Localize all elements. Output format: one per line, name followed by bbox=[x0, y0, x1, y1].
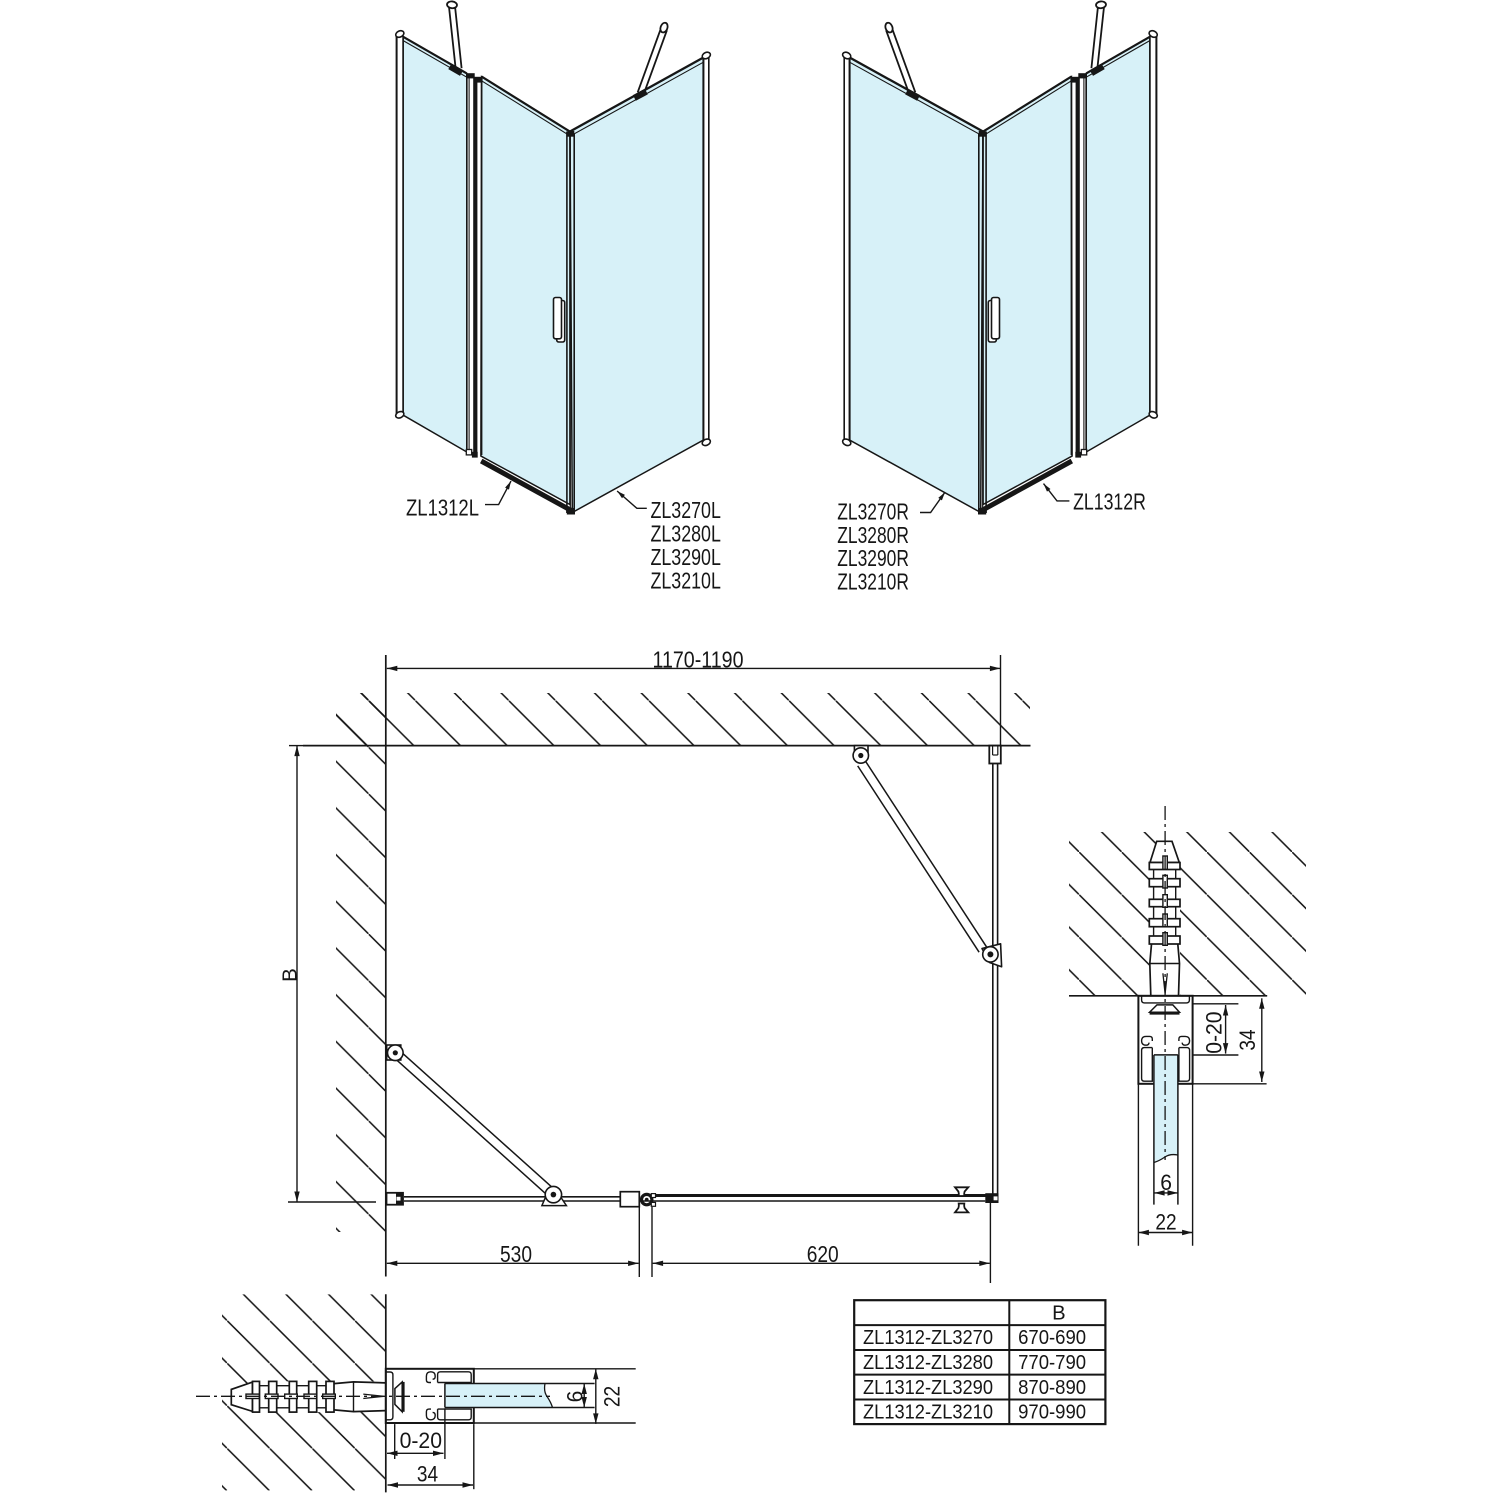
svg-text:ZL1312-ZL3290: ZL1312-ZL3290 bbox=[863, 1377, 993, 1399]
svg-text:620: 620 bbox=[807, 1241, 839, 1267]
svg-text:ZL1312-ZL3280: ZL1312-ZL3280 bbox=[863, 1352, 993, 1374]
svg-text:870-890: 870-890 bbox=[1018, 1377, 1086, 1399]
svg-text:0-20: 0-20 bbox=[400, 1428, 442, 1453]
svg-text:ZL3270L: ZL3270L bbox=[651, 497, 721, 523]
svg-text:670-690: 670-690 bbox=[1018, 1327, 1086, 1349]
svg-text:ZL3210L: ZL3210L bbox=[651, 567, 721, 593]
svg-text:ZL3290R: ZL3290R bbox=[837, 545, 909, 571]
svg-text:770-790: 770-790 bbox=[1018, 1352, 1086, 1374]
svg-text:ZL1312-ZL3210: ZL1312-ZL3210 bbox=[863, 1402, 993, 1424]
svg-text:ZL3290L: ZL3290L bbox=[651, 544, 721, 570]
svg-text:ZL3270R: ZL3270R bbox=[837, 498, 909, 524]
svg-text:ZL1312L: ZL1312L bbox=[406, 495, 479, 521]
svg-text:34: 34 bbox=[1235, 1029, 1260, 1050]
svg-text:6: 6 bbox=[563, 1391, 588, 1403]
svg-text:0-20: 0-20 bbox=[1201, 1011, 1226, 1053]
svg-text:530: 530 bbox=[500, 1241, 532, 1267]
svg-text:ZL1312R: ZL1312R bbox=[1073, 489, 1146, 515]
svg-text:B: B bbox=[279, 968, 302, 982]
svg-text:ZL3280R: ZL3280R bbox=[837, 522, 909, 548]
svg-text:22: 22 bbox=[600, 1386, 625, 1407]
svg-text:22: 22 bbox=[1155, 1210, 1176, 1235]
svg-text:ZL1312-ZL3270: ZL1312-ZL3270 bbox=[863, 1327, 993, 1349]
svg-text:ZL3210R: ZL3210R bbox=[837, 569, 909, 595]
svg-text:1170-1190: 1170-1190 bbox=[653, 647, 744, 673]
svg-text:B: B bbox=[1052, 1303, 1066, 1325]
svg-text:ZL3280L: ZL3280L bbox=[651, 521, 721, 547]
svg-text:6: 6 bbox=[1160, 1170, 1172, 1195]
svg-text:970-990: 970-990 bbox=[1018, 1402, 1086, 1424]
svg-text:34: 34 bbox=[417, 1461, 438, 1486]
